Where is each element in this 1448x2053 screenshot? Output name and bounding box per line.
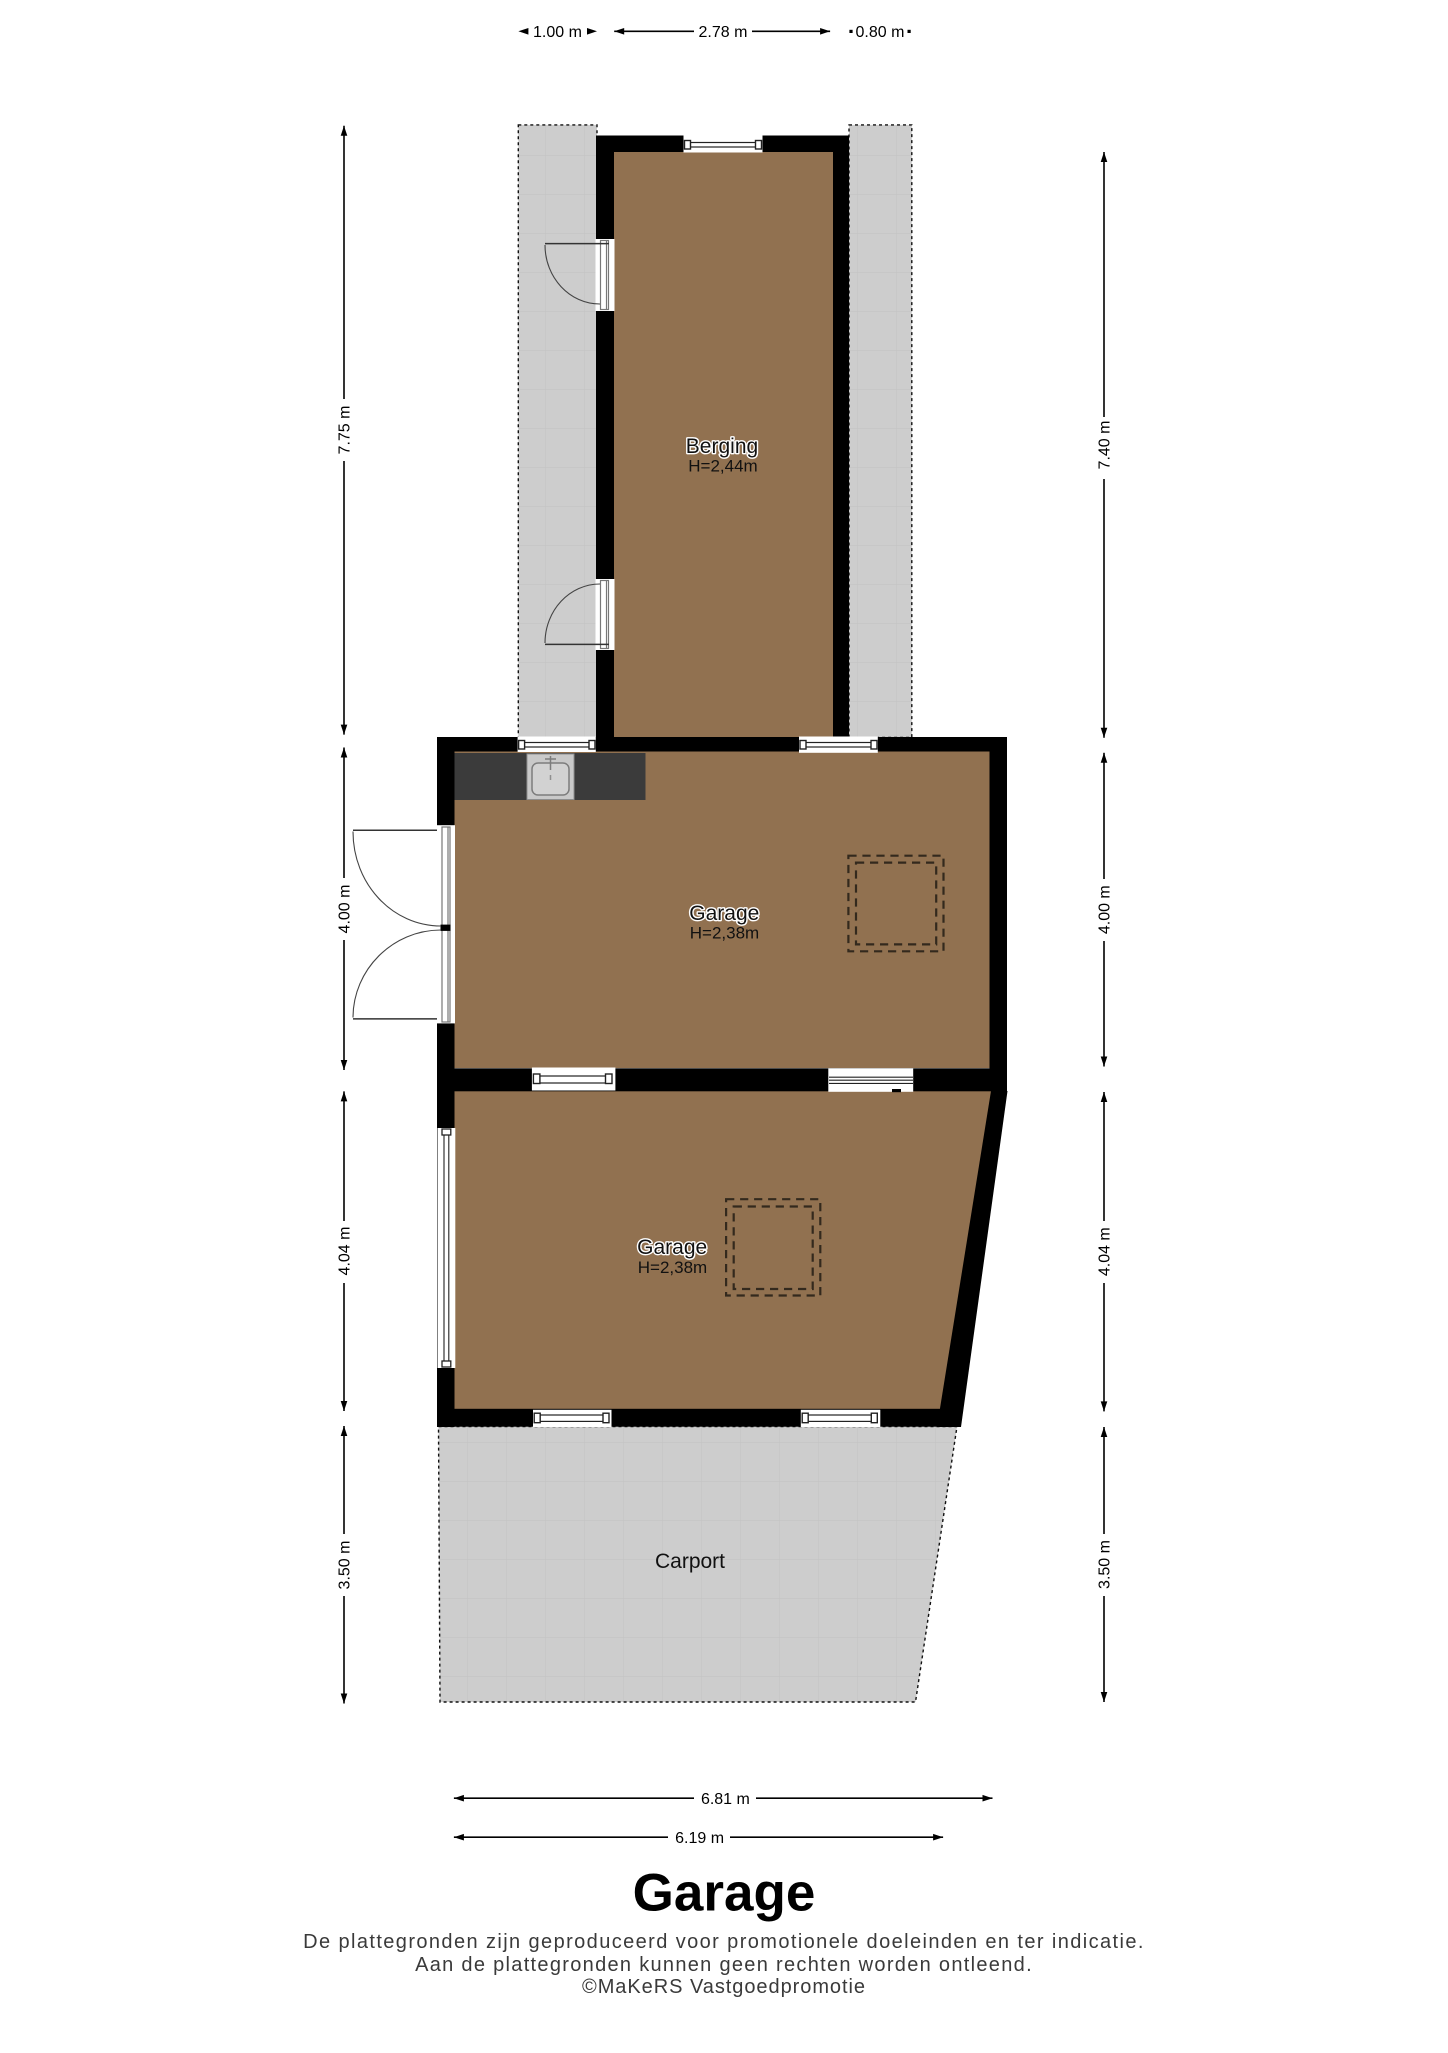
svg-text:4.00 m: 4.00 m — [1097, 885, 1114, 934]
svg-text:©MaKeRS Vastgoedpromotie: ©MaKeRS Vastgoedpromotie — [582, 1976, 866, 1998]
svg-text:0.80 m: 0.80 m — [856, 24, 905, 41]
svg-text:1.00 m: 1.00 m — [533, 24, 582, 41]
svg-text:7.40 m: 7.40 m — [1097, 421, 1114, 470]
svg-text:H=2,44m: H=2,44m — [688, 457, 757, 476]
svg-text:4.00 m: 4.00 m — [337, 885, 354, 934]
svg-text:3.50 m: 3.50 m — [337, 1541, 354, 1590]
svg-text:De plattegronden zijn geproduc: De plattegronden zijn geproduceerd voor … — [303, 1931, 1145, 1953]
svg-text:2.78 m: 2.78 m — [699, 24, 748, 41]
svg-text:H=2,38m: H=2,38m — [690, 924, 759, 943]
svg-text:4.04 m: 4.04 m — [337, 1227, 354, 1276]
svg-text:7.75 m: 7.75 m — [337, 406, 354, 455]
svg-text:6.19 m: 6.19 m — [675, 1830, 724, 1847]
svg-text:Berging: Berging — [686, 435, 758, 458]
svg-text:Carport: Carport — [655, 1550, 725, 1573]
svg-text:H=2,38m: H=2,38m — [638, 1258, 707, 1277]
svg-text:6.81 m: 6.81 m — [701, 1791, 750, 1808]
svg-text:4.04 m: 4.04 m — [1097, 1227, 1114, 1276]
svg-text:Garage: Garage — [637, 1236, 707, 1259]
svg-text:Garage: Garage — [689, 902, 759, 925]
svg-text:Garage: Garage — [633, 1864, 816, 1923]
svg-text:3.50 m: 3.50 m — [1097, 1540, 1114, 1589]
svg-text:Aan de plattegronden kunnen ge: Aan de plattegronden kunnen geen rechten… — [415, 1954, 1033, 1976]
